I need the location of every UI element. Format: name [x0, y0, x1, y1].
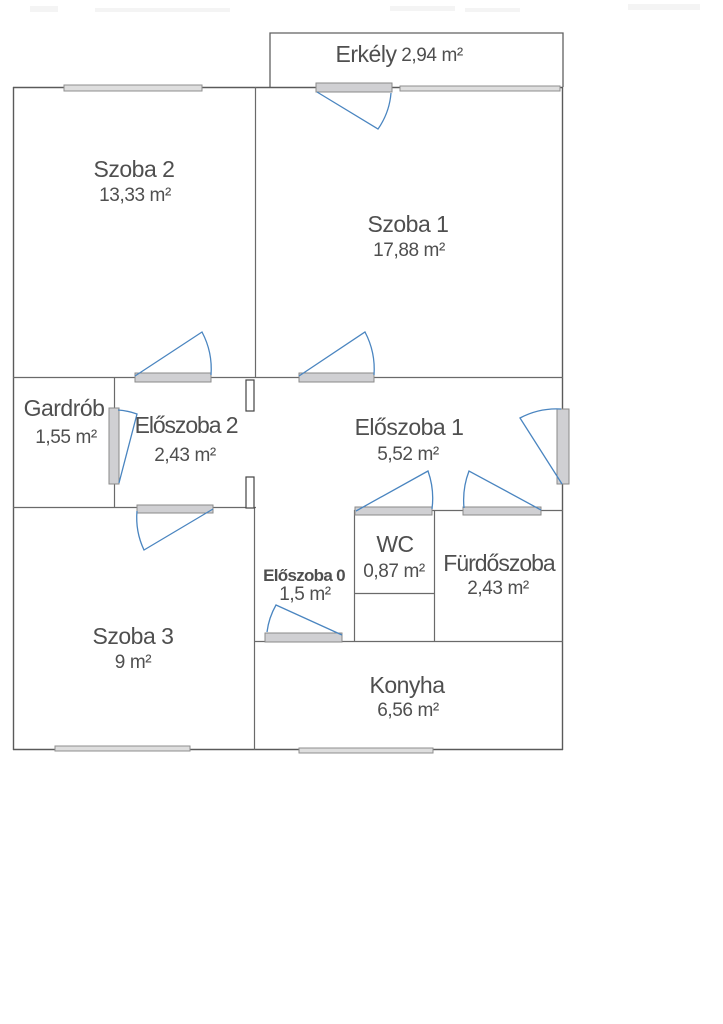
svg-text:Szoba 3: Szoba 3: [93, 623, 174, 649]
svg-text:Előszoba 0: Előszoba 0: [263, 566, 345, 585]
svg-text:6,56 m²: 6,56 m²: [377, 700, 439, 721]
svg-text:Szoba 2: Szoba 2: [94, 156, 175, 182]
svg-text:1,55 m²: 1,55 m²: [35, 427, 97, 448]
svg-text:Szoba 1: Szoba 1: [368, 211, 449, 237]
svg-text:17,88 m²: 17,88 m²: [373, 240, 445, 261]
svg-text:Gardrób: Gardrób: [24, 395, 105, 421]
svg-text:1,5 m²: 1,5 m²: [279, 584, 331, 605]
svg-text:2,43 m²: 2,43 m²: [467, 578, 529, 599]
svg-text:Előszoba 1: Előszoba 1: [355, 414, 464, 440]
svg-text:2,43 m²: 2,43 m²: [154, 445, 216, 466]
svg-text:5,52 m²: 5,52 m²: [377, 444, 439, 465]
svg-text:Fürdőszoba: Fürdőszoba: [443, 550, 556, 576]
svg-text:Erkély: Erkély: [336, 41, 398, 67]
svg-text:13,33 m²: 13,33 m²: [99, 185, 171, 206]
svg-text:2,94 m²: 2,94 m²: [401, 45, 463, 66]
svg-text:9 m²: 9 m²: [115, 652, 151, 673]
svg-text:Előszoba 2: Előszoba 2: [135, 412, 238, 438]
svg-text:Konyha: Konyha: [369, 672, 445, 698]
svg-text:0,87 m²: 0,87 m²: [363, 561, 425, 582]
svg-text:WC: WC: [376, 531, 413, 557]
